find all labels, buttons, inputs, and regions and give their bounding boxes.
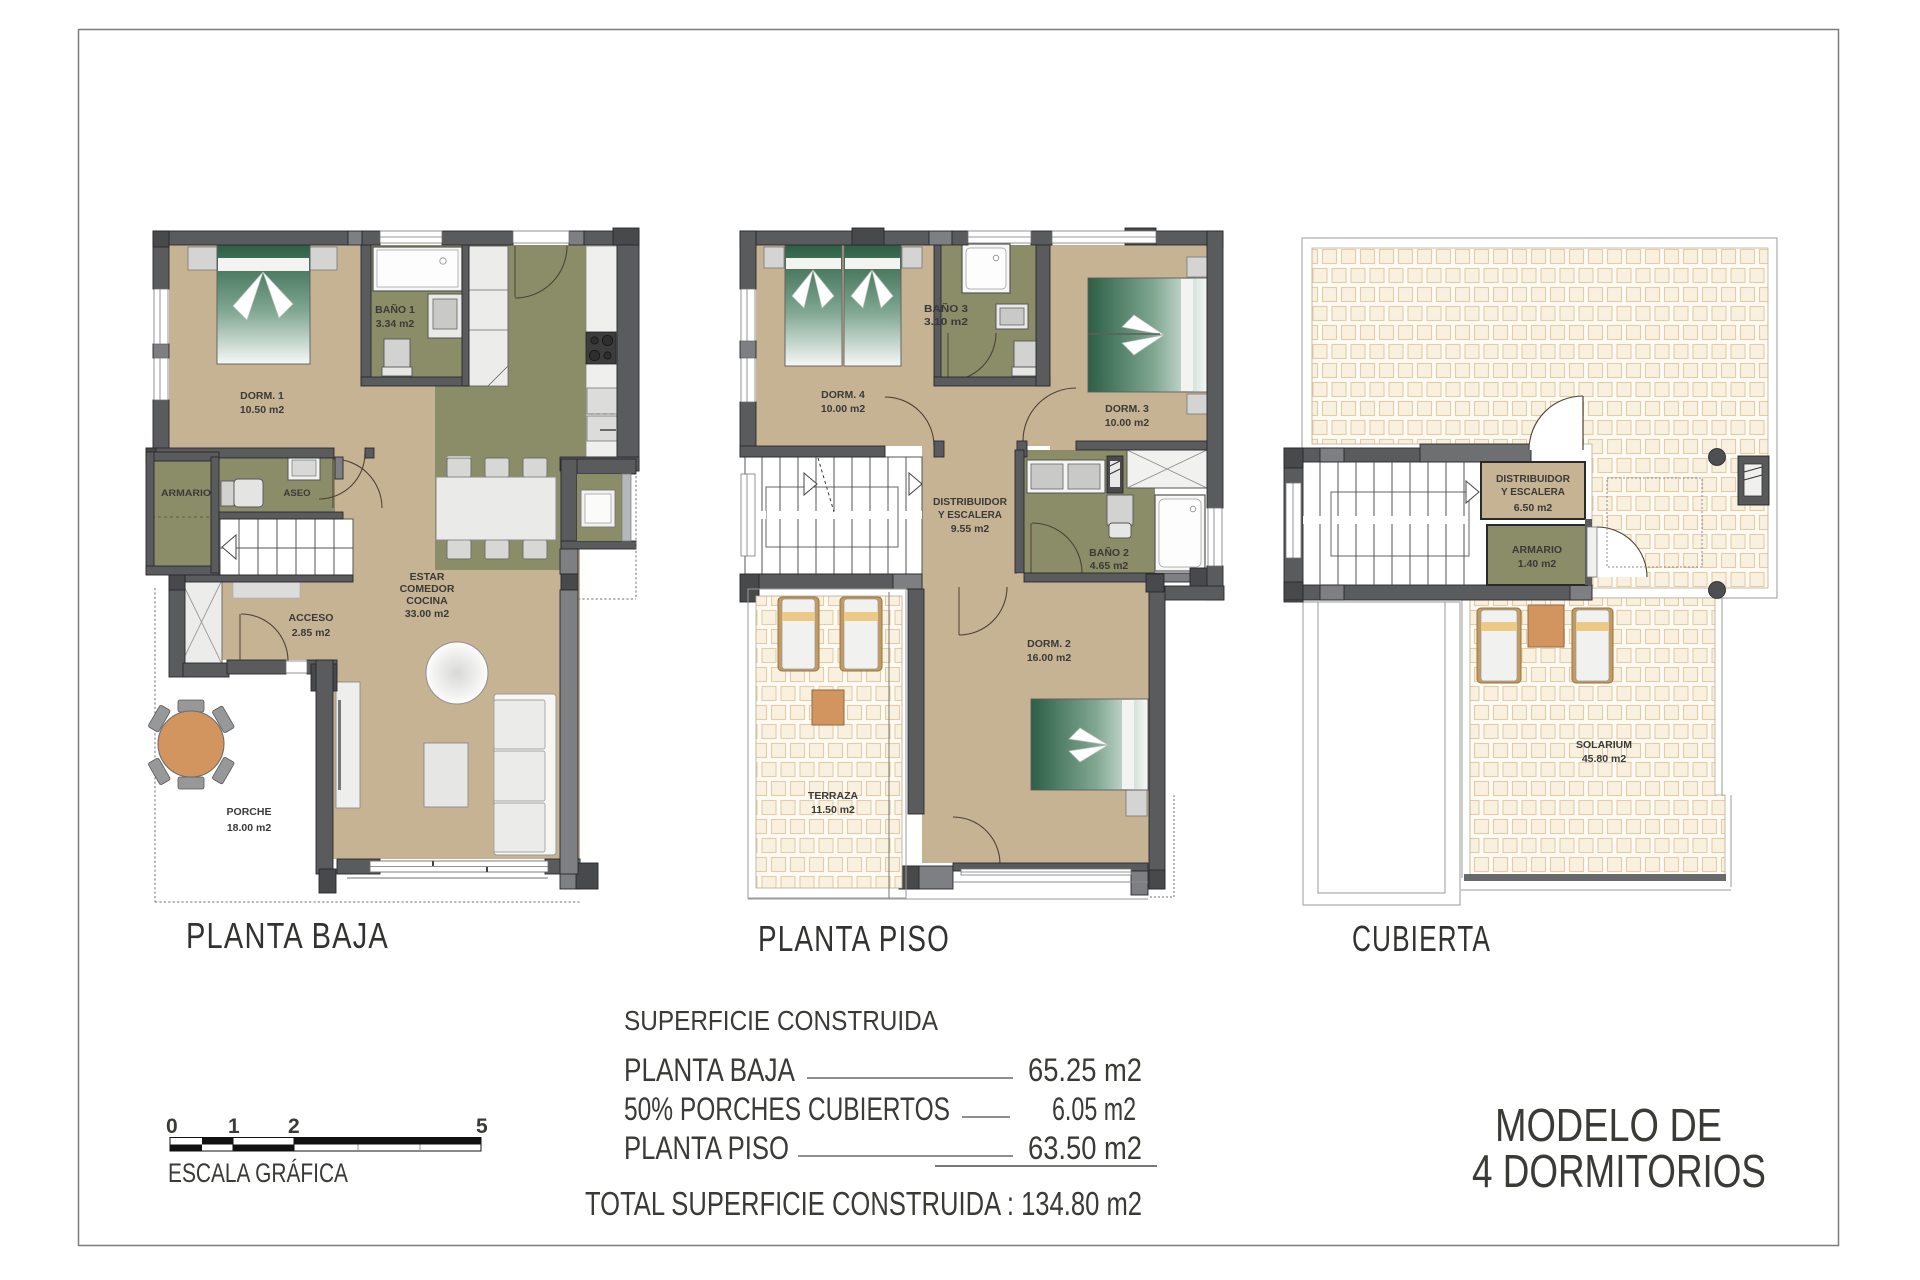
svg-text:2: 2 bbox=[288, 1115, 300, 1138]
svg-text:Y ESCALERA: Y ESCALERA bbox=[1501, 486, 1565, 498]
svg-text:4 DORMITORIOS: 4 DORMITORIOS bbox=[1472, 1145, 1766, 1197]
svg-text:MODELO DE: MODELO DE bbox=[1495, 1099, 1722, 1151]
svg-text:45.80 m2: 45.80 m2 bbox=[1582, 753, 1627, 765]
svg-text:DORM. 1: DORM. 1 bbox=[240, 390, 284, 402]
svg-text:10.00 m2: 10.00 m2 bbox=[1105, 417, 1150, 429]
svg-text:5: 5 bbox=[476, 1115, 488, 1138]
svg-text:0: 0 bbox=[166, 1115, 178, 1138]
svg-text:DORM. 4: DORM. 4 bbox=[821, 389, 865, 401]
svg-text:ESTAR: ESTAR bbox=[410, 571, 445, 583]
svg-text:1.40 m2: 1.40 m2 bbox=[1518, 558, 1557, 570]
svg-text:ARMARIO: ARMARIO bbox=[1512, 544, 1562, 556]
svg-text:COCINA: COCINA bbox=[406, 595, 448, 607]
svg-text:10.00 m2: 10.00 m2 bbox=[821, 403, 866, 415]
svg-text:3.34 m2: 3.34 m2 bbox=[376, 318, 415, 330]
svg-text:BAÑO 2: BAÑO 2 bbox=[1089, 546, 1129, 559]
svg-text:DISTRIBUIDOR: DISTRIBUIDOR bbox=[1496, 473, 1570, 485]
svg-text:DISTRIBUIDOR: DISTRIBUIDOR bbox=[933, 496, 1007, 508]
svg-text:63.50 m2: 63.50 m2 bbox=[1028, 1130, 1142, 1166]
svg-text:SOLARIUM: SOLARIUM bbox=[1576, 739, 1632, 751]
svg-text:ESCALA GRÁFICA: ESCALA GRÁFICA bbox=[168, 1158, 348, 1188]
svg-text:Y ESCALERA: Y ESCALERA bbox=[938, 509, 1002, 521]
svg-text:65.25 m2: 65.25 m2 bbox=[1028, 1052, 1142, 1088]
svg-text:PORCHE: PORCHE bbox=[227, 806, 272, 818]
svg-text:2.85 m2: 2.85 m2 bbox=[292, 627, 331, 639]
svg-text:3.10 m2: 3.10 m2 bbox=[924, 316, 968, 328]
svg-text:9.55 m2: 9.55 m2 bbox=[951, 523, 990, 535]
svg-text:BAÑO 1: BAÑO 1 bbox=[375, 303, 415, 316]
svg-text:CUBIERTA: CUBIERTA bbox=[1352, 918, 1491, 959]
svg-text:COMEDOR: COMEDOR bbox=[400, 583, 455, 595]
svg-text:BAÑO 3: BAÑO 3 bbox=[924, 302, 968, 315]
svg-text:18.00 m2: 18.00 m2 bbox=[227, 822, 272, 834]
svg-text:ARMARIO: ARMARIO bbox=[161, 488, 211, 499]
svg-text:16.00 m2: 16.00 m2 bbox=[1027, 652, 1072, 664]
svg-text:PLANTA BAJA: PLANTA BAJA bbox=[624, 1052, 796, 1088]
svg-text:ACCESO: ACCESO bbox=[289, 612, 334, 624]
svg-text:6.05 m2: 6.05 m2 bbox=[1052, 1091, 1136, 1127]
svg-text:TOTAL SUPERFICIE CONSTRUIDA :: TOTAL SUPERFICIE CONSTRUIDA : 134.80 m2 bbox=[585, 1185, 1142, 1222]
svg-text:DORM. 3: DORM. 3 bbox=[1105, 403, 1149, 415]
svg-text:4.65 m2: 4.65 m2 bbox=[1090, 560, 1129, 572]
svg-text:33.00 m2: 33.00 m2 bbox=[405, 608, 450, 620]
svg-text:10.50 m2: 10.50 m2 bbox=[240, 404, 285, 416]
svg-text:PLANTA BAJA: PLANTA BAJA bbox=[186, 915, 389, 956]
svg-text:11.50 m2: 11.50 m2 bbox=[811, 804, 855, 816]
svg-text:SUPERFICIE CONSTRUIDA: SUPERFICIE CONSTRUIDA bbox=[624, 1005, 938, 1036]
svg-text:50% PORCHES CUBIERTOS: 50% PORCHES CUBIERTOS bbox=[624, 1091, 950, 1127]
svg-text:1: 1 bbox=[228, 1115, 240, 1138]
svg-text:PLANTA PISO: PLANTA PISO bbox=[758, 918, 950, 959]
svg-text:PLANTA PISO: PLANTA PISO bbox=[624, 1130, 789, 1166]
svg-text:6.50 m2: 6.50 m2 bbox=[1514, 502, 1553, 514]
svg-text:TERRAZA: TERRAZA bbox=[808, 790, 859, 802]
svg-text:DORM. 2: DORM. 2 bbox=[1027, 638, 1071, 650]
svg-text:ASEO: ASEO bbox=[284, 488, 311, 499]
